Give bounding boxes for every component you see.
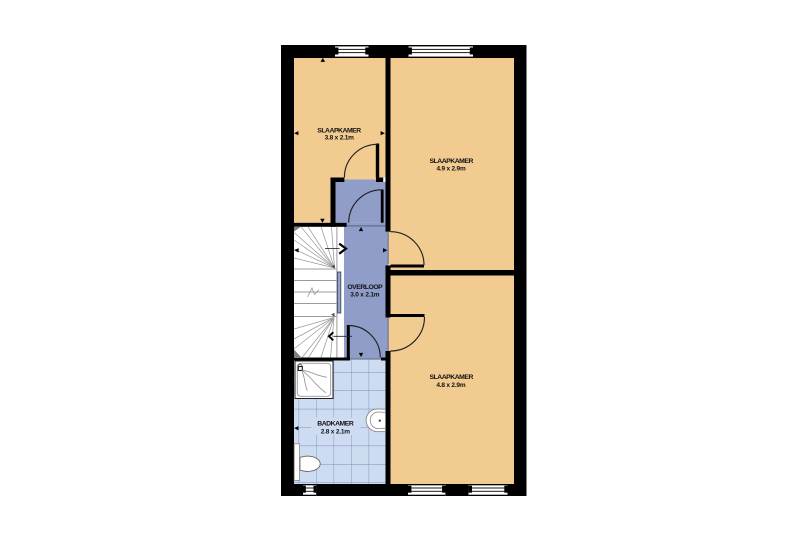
svg-text:OVERLOOP: OVERLOOP (347, 284, 383, 291)
svg-text:3.8 x 2.1m: 3.8 x 2.1m (325, 135, 354, 142)
svg-text:SLAAPKAMER: SLAAPKAMER (429, 374, 473, 381)
svg-text:SLAAPKAMER: SLAAPKAMER (429, 158, 473, 165)
svg-text:4.9 x 2.9m: 4.9 x 2.9m (436, 166, 465, 173)
svg-text:3.0 x 2.1m: 3.0 x 2.1m (350, 292, 379, 299)
svg-text:BADKAMER: BADKAMER (317, 420, 354, 427)
svg-text:4.8 x 2.9m: 4.8 x 2.9m (436, 382, 465, 389)
svg-text:SLAAPKAMER: SLAAPKAMER (317, 128, 361, 135)
svg-text:2.8 x 2.1m: 2.8 x 2.1m (321, 428, 350, 435)
